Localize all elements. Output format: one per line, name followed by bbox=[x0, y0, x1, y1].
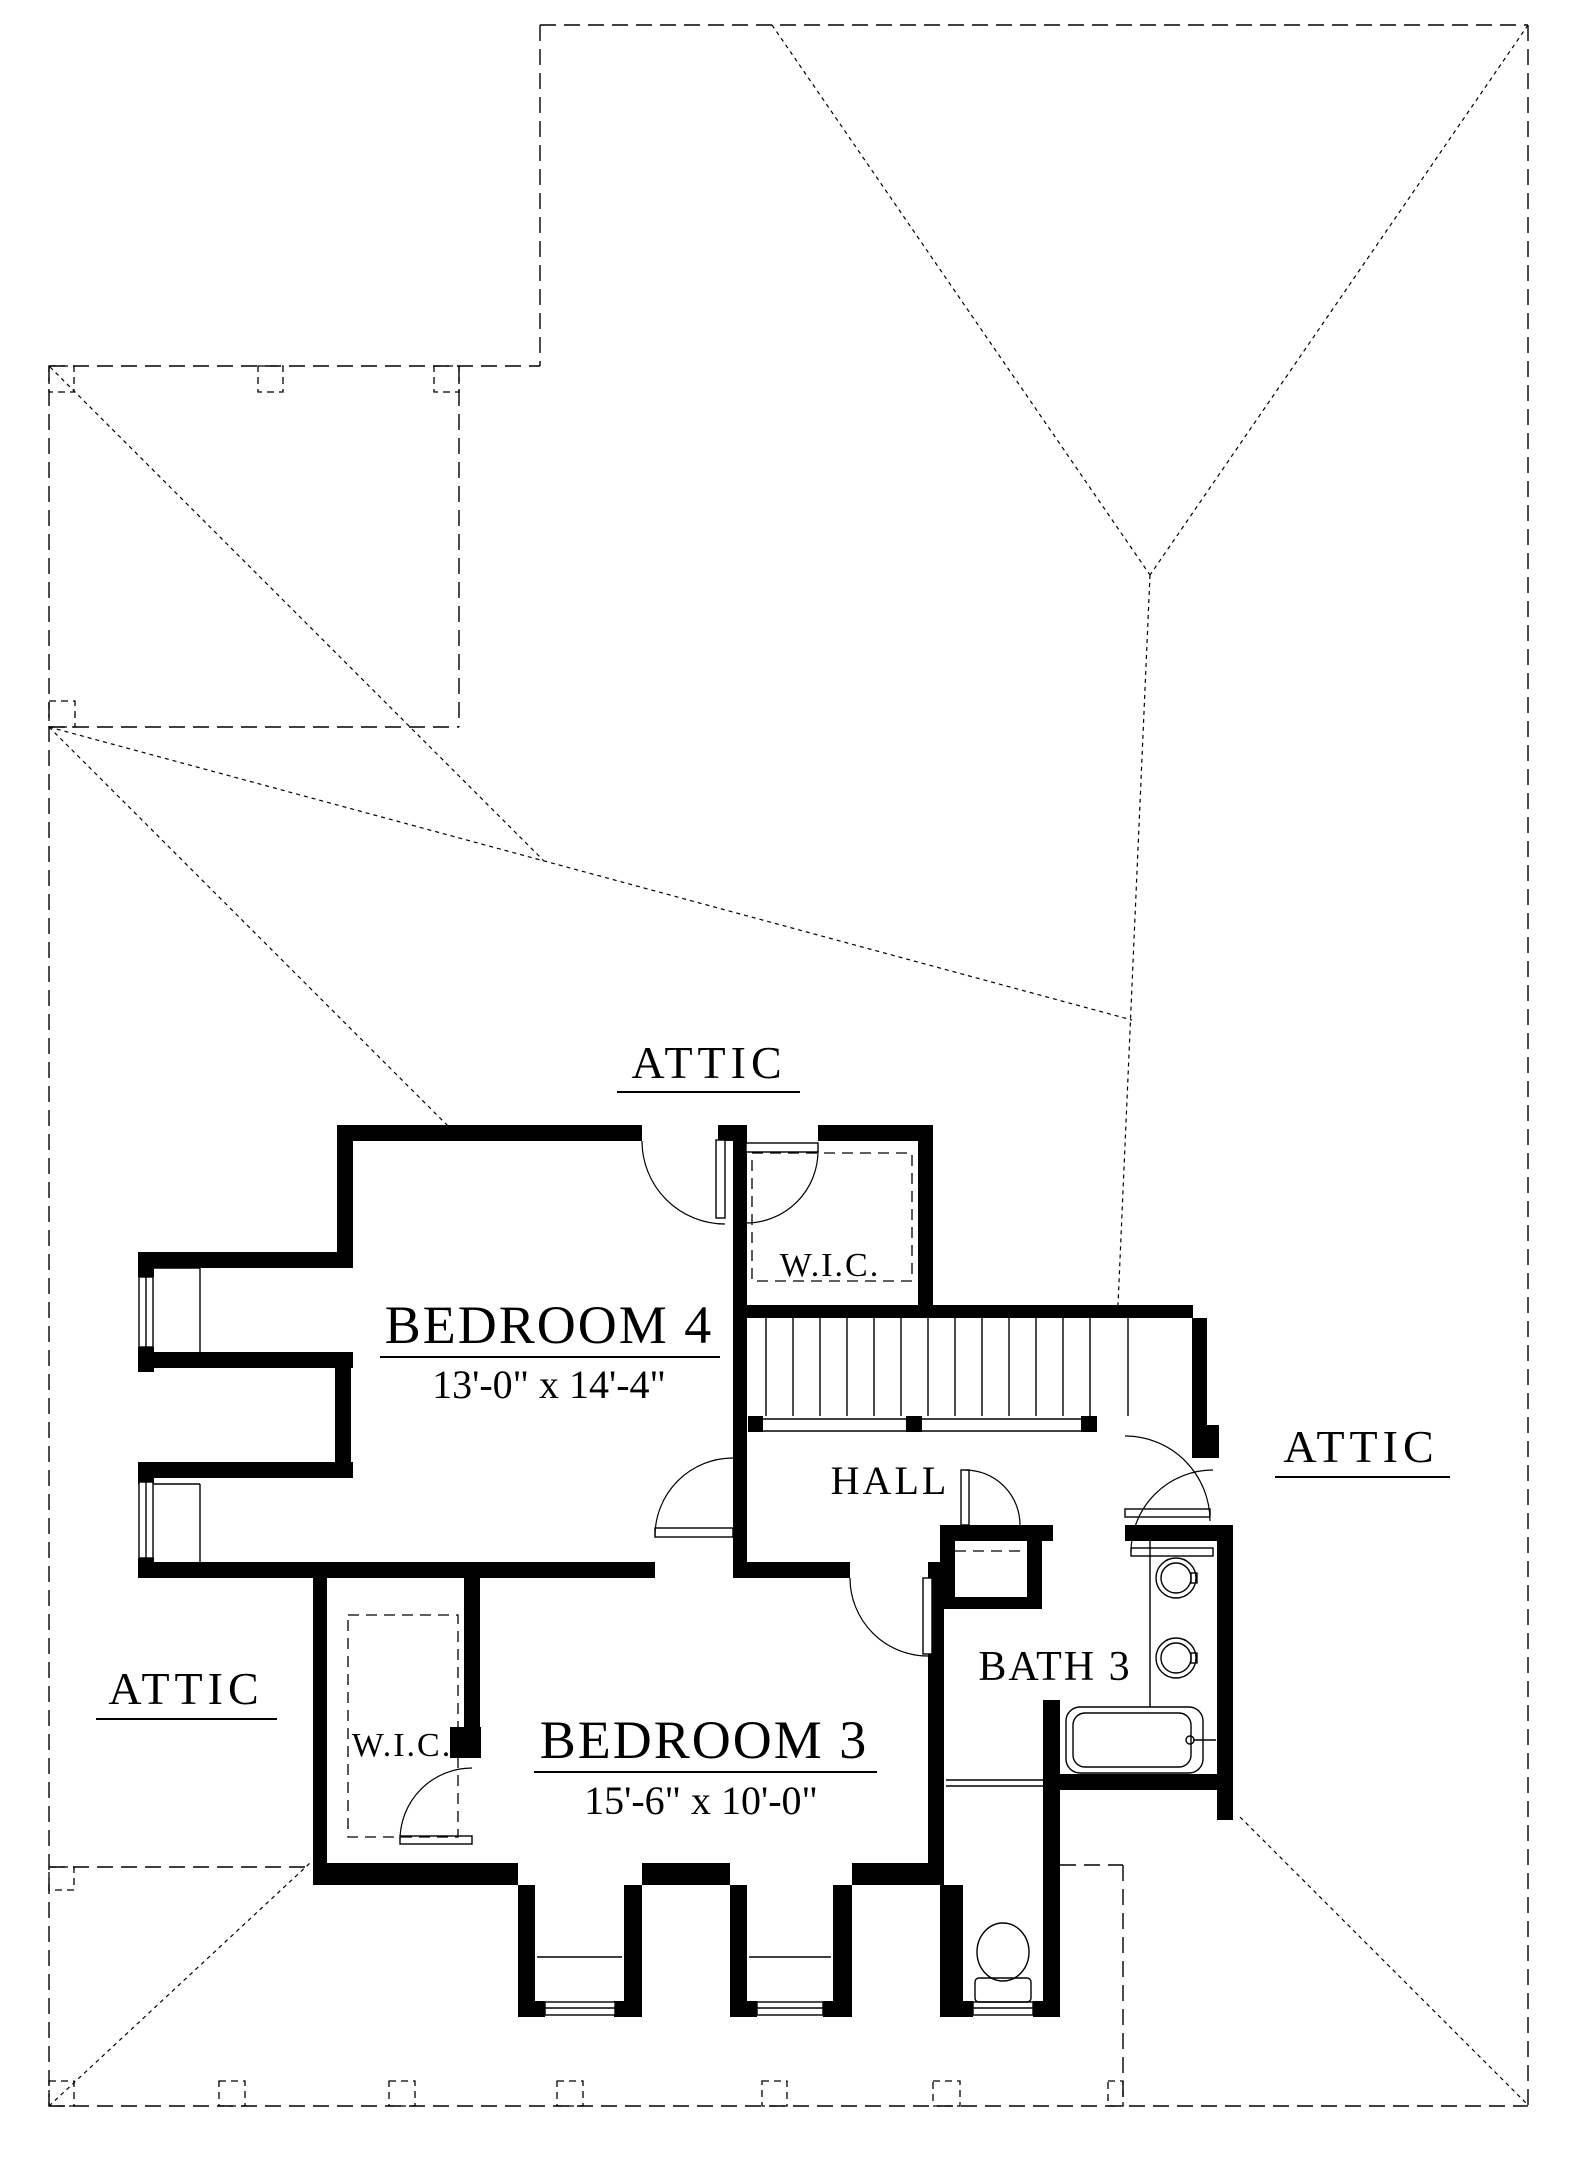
stair-treads bbox=[766, 1318, 1128, 1416]
sink bbox=[1156, 1638, 1196, 1678]
door-swing-arc bbox=[850, 1578, 928, 1656]
door-swing-arc bbox=[400, 1768, 472, 1840]
newel-post bbox=[1081, 1416, 1097, 1432]
bedroom3-label: BEDROOM 3 bbox=[540, 1710, 869, 1770]
bathtub bbox=[1066, 1707, 1203, 1773]
sink-basin bbox=[1161, 1643, 1191, 1673]
staircase bbox=[748, 1318, 1128, 1432]
door-leaf bbox=[1125, 1509, 1210, 1517]
door-leaf bbox=[716, 1140, 725, 1218]
valley-line bbox=[50, 367, 544, 861]
bedroom3-dimensions: 15'-6" x 10'-0" bbox=[584, 1778, 818, 1823]
wic-upper-label: W.I.C. bbox=[780, 1247, 880, 1284]
wic2-shelf-outline bbox=[348, 1615, 458, 1837]
door-leaf bbox=[746, 1143, 818, 1152]
attic-left-label: ATTIC bbox=[108, 1663, 263, 1714]
door-leaf bbox=[1131, 1548, 1213, 1556]
door-swing-arc bbox=[655, 1458, 733, 1536]
bathtub-inner bbox=[1073, 1713, 1191, 1767]
ridge-line bbox=[1118, 575, 1150, 1305]
valley-line bbox=[49, 727, 450, 1128]
newel-post bbox=[748, 1416, 763, 1432]
hip-line bbox=[772, 25, 1150, 575]
attic-top-label: ATTIC bbox=[631, 1037, 786, 1088]
door-leaf bbox=[655, 1528, 733, 1537]
door-leaf bbox=[923, 1578, 932, 1654]
toilet-bowl bbox=[977, 1923, 1029, 1981]
stair-railing bbox=[748, 1416, 1097, 1432]
door-swing-arc bbox=[746, 1151, 818, 1223]
sink bbox=[1156, 1558, 1196, 1598]
bedroom4-dimensions: 13'-0" x 14'-4" bbox=[432, 1362, 666, 1407]
door-leaf bbox=[961, 1470, 969, 1525]
labels: ATTIC ATTIC ATTIC BEDROOM 4 13'-0" x 14'… bbox=[96, 1037, 1450, 1823]
bedroom4-label: BEDROOM 4 bbox=[385, 1295, 714, 1355]
tub-faucet bbox=[1186, 1736, 1194, 1744]
door-swing-arc bbox=[965, 1470, 1020, 1525]
floor-plan-drawing: ATTIC ATTIC ATTIC BEDROOM 4 13'-0" x 14'… bbox=[0, 0, 1580, 2176]
porch-hip-line bbox=[49, 1863, 310, 2106]
floor-plan-page: ATTIC ATTIC ATTIC BEDROOM 4 13'-0" x 14'… bbox=[0, 0, 1580, 2176]
walls bbox=[138, 1125, 1233, 2017]
valley-line bbox=[49, 727, 1132, 1020]
post-markers bbox=[49, 366, 1123, 2106]
attic-right-label: ATTIC bbox=[1283, 1421, 1438, 1472]
door-swing-arc bbox=[642, 1141, 725, 1224]
bath3-label: BATH 3 bbox=[978, 1644, 1131, 1690]
bath-fixtures bbox=[946, 1541, 1216, 2002]
newel-post bbox=[906, 1416, 922, 1432]
sink-basin bbox=[1161, 1563, 1191, 1593]
hip-line bbox=[1150, 25, 1528, 575]
wic-lower-label: W.I.C. bbox=[352, 1727, 452, 1764]
porch-hip-line bbox=[1240, 1817, 1528, 2105]
hall-label: HALL bbox=[831, 1458, 950, 1503]
